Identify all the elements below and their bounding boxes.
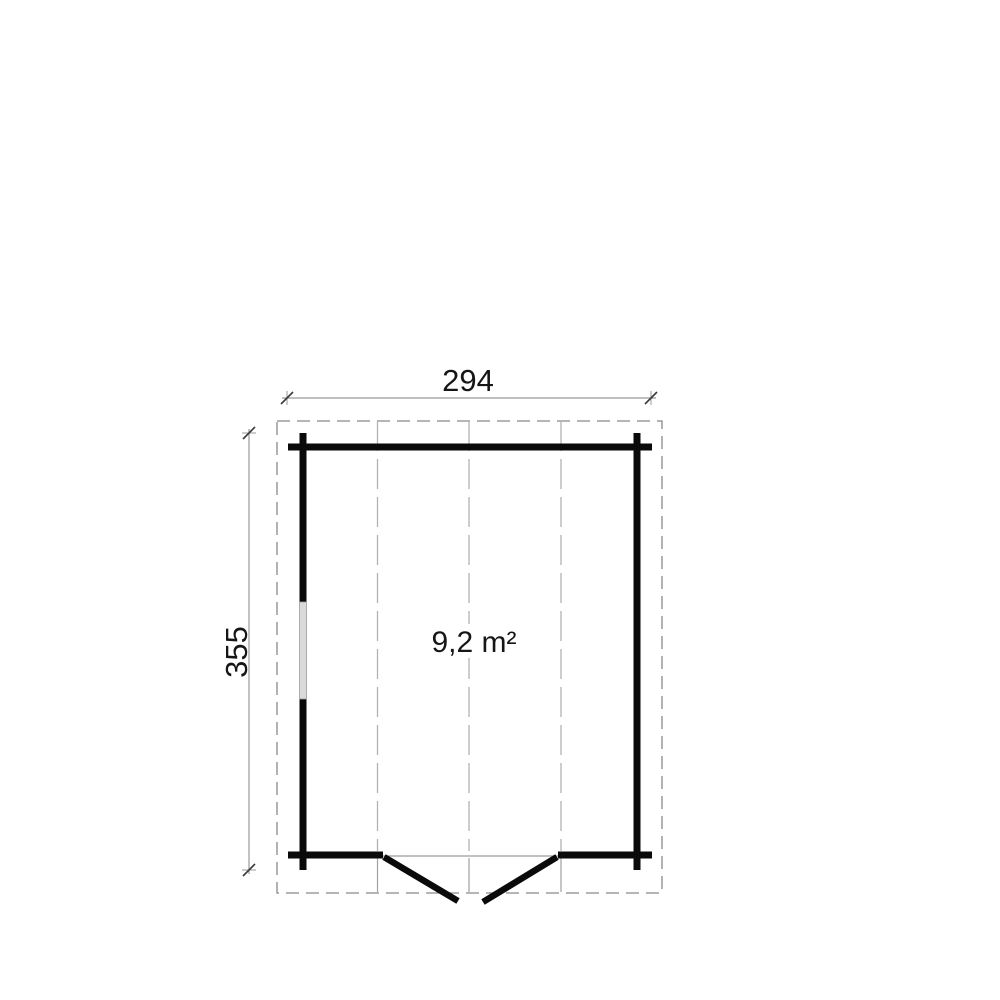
dimension-width-label: 294: [442, 363, 494, 398]
door-leaf-right: [483, 857, 557, 902]
floor-plan-drawing: 9,2 m²: [0, 0, 1000, 1000]
floor-plan-canvas: 9,2 m²: [0, 0, 1000, 1000]
door-leaf-left: [384, 857, 458, 901]
double-door: [384, 857, 557, 902]
dimension-height: 355: [219, 427, 256, 876]
dimension-height-label: 355: [219, 626, 254, 678]
room-area-label: 9,2 m²: [431, 626, 516, 659]
dimension-width: 294: [281, 363, 657, 405]
window-left-wall: [300, 602, 307, 699]
